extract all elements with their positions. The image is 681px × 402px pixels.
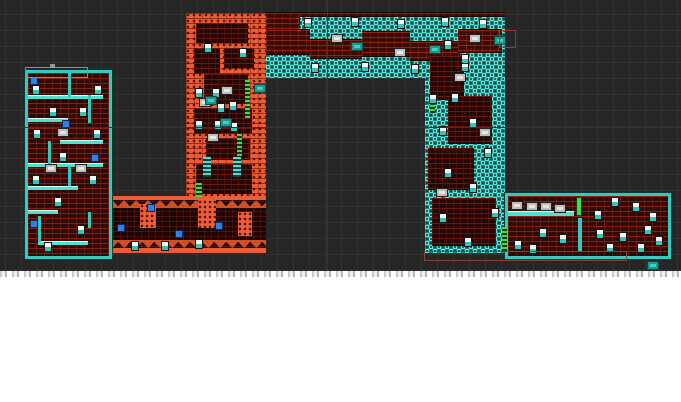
tower-platform [28, 118, 68, 122]
candle-sprite [230, 102, 236, 110]
ladder [502, 227, 507, 251]
candle-sprite [452, 94, 458, 102]
vertical-guide-line [327, 0, 328, 271]
orb-item [148, 205, 154, 211]
room-bounds-handle [50, 64, 55, 68]
page-background [0, 277, 681, 402]
item-box [437, 189, 447, 196]
orb-item [216, 223, 222, 229]
item-box [76, 165, 86, 172]
hall-divider [578, 218, 582, 251]
candle-sprite [55, 198, 61, 206]
candle-sprite [352, 18, 358, 26]
candle-sprite [445, 169, 451, 177]
candle-sprite [162, 242, 168, 250]
tower-platform [28, 163, 103, 167]
corridor-top-strip [300, 13, 505, 16]
candle-sprite [465, 238, 471, 246]
shaft-pocket [224, 48, 254, 68]
item-box [555, 205, 565, 212]
candle-sprite [305, 19, 311, 27]
orb-item [176, 231, 182, 237]
orb-item [92, 155, 98, 161]
candle-sprite [33, 86, 39, 94]
item-box [527, 203, 537, 210]
teal-ladder [233, 157, 241, 177]
candle-sprite [412, 65, 418, 73]
cave-stalagmite [198, 200, 216, 228]
selection-bracket [499, 30, 516, 48]
tower-platform [28, 210, 58, 214]
item-box [455, 74, 465, 81]
candle-sprite [430, 95, 436, 103]
candle-sprite [485, 149, 491, 157]
candle-sprite [462, 55, 468, 63]
item-box [541, 203, 551, 210]
room-bounds-outline [25, 67, 88, 78]
candle-sprite [218, 104, 224, 112]
candle-sprite [240, 49, 246, 57]
ladder [196, 183, 202, 197]
candle-sprite [442, 18, 448, 26]
item-box [222, 87, 232, 94]
machine-tile [352, 43, 362, 50]
candle-sprite [78, 226, 84, 234]
candle-sprite [612, 198, 618, 206]
orb-item [118, 225, 124, 231]
teal-ladder [203, 157, 211, 177]
candle-sprite [440, 127, 446, 135]
tower-platform [28, 95, 103, 99]
item-box [480, 129, 490, 136]
right-shaft-pocket [428, 148, 474, 190]
corridor-rock [266, 30, 310, 54]
candle-sprite [196, 240, 202, 248]
ladder [245, 80, 250, 118]
tower-platform [28, 186, 78, 190]
horizontal-guide-line [0, 127, 681, 128]
item-box [58, 129, 68, 136]
candle-sprite [638, 244, 644, 252]
candle-sprite [597, 230, 603, 238]
machine-tile [221, 119, 231, 126]
candle-sprite [492, 209, 498, 217]
tower-wall [38, 216, 41, 242]
shaft-pocket [206, 138, 250, 160]
stray-tile [648, 262, 658, 269]
tower-wall [48, 141, 51, 165]
candle-sprite [540, 229, 546, 237]
candle-sprite [470, 119, 476, 127]
candle-sprite [34, 130, 40, 138]
candle-sprite [620, 233, 626, 241]
item-box [46, 165, 56, 172]
candle-sprite [362, 63, 368, 71]
candle-sprite [650, 213, 656, 221]
candle-sprite [33, 176, 39, 184]
candle-sprite [595, 211, 601, 219]
candle-sprite [312, 64, 318, 72]
candle-sprite [440, 214, 446, 222]
candle-sprite [656, 237, 662, 245]
candle-sprite [90, 176, 96, 184]
machine-tile [430, 46, 440, 53]
candle-sprite [560, 235, 566, 243]
candle-sprite [470, 184, 476, 192]
candle-sprite [213, 89, 219, 97]
candle-sprite [398, 20, 404, 28]
candle-sprite [196, 89, 202, 97]
item-box [208, 134, 218, 141]
item-box [470, 35, 480, 42]
candle-sprite [132, 242, 138, 250]
candle-sprite [515, 241, 521, 249]
selection-rect [424, 251, 627, 261]
item-box [395, 49, 405, 56]
tower-wall [88, 212, 91, 228]
hall-door [576, 197, 582, 216]
orb-item [31, 221, 37, 227]
tower-wall [68, 166, 71, 186]
tower-wall [88, 95, 91, 123]
candle-sprite [445, 41, 451, 49]
candle-sprite [45, 243, 51, 251]
tower-platform [60, 140, 103, 144]
machine-tile [255, 85, 265, 92]
corridor-top-patch [266, 13, 300, 31]
right-shaft-pocket [432, 198, 496, 246]
candle-sprite [95, 86, 101, 94]
candle-sprite [480, 20, 486, 28]
candle-sprite [633, 203, 639, 211]
candle-sprite [80, 108, 86, 116]
orb-item [31, 78, 37, 84]
candle-sprite [462, 63, 468, 71]
item-box [512, 202, 522, 209]
candle-sprite [205, 44, 211, 52]
ladder [237, 134, 242, 156]
shaft-pocket [196, 23, 248, 43]
map-canvas[interactable] [0, 0, 681, 271]
item-box [332, 35, 342, 42]
machine-tile [206, 97, 216, 104]
candle-sprite [645, 226, 651, 234]
candle-sprite [50, 108, 56, 116]
candle-sprite [60, 153, 66, 161]
candle-sprite [94, 130, 100, 138]
cave-stalagmite [238, 212, 252, 236]
